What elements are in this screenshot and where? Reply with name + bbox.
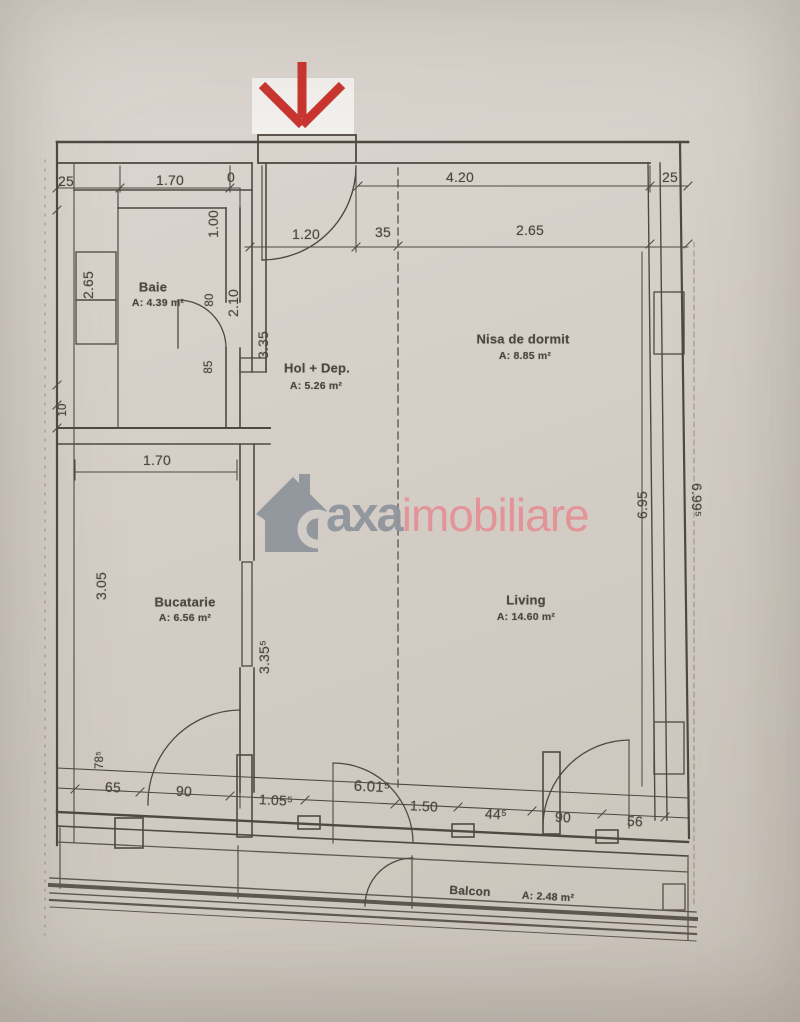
room-label-living: Living xyxy=(506,593,545,608)
dim-top-right-25: 25 xyxy=(662,169,678,185)
dim-bottom-78-5: 78⁵ xyxy=(94,751,106,769)
room-label-nisa: Nisa de dormit xyxy=(476,332,569,347)
dim-bottom-65: 65 xyxy=(105,779,122,796)
scanned-floor-plan-photo: axa imobiliare Baie A: 4.39 m² Hol + Dep… xyxy=(0,0,800,1022)
dim-right-6-99-5: 6.99⁵ xyxy=(689,483,705,517)
dim-baie-2-10: 2.10 xyxy=(225,289,241,317)
dim-row2-1-20: 1.20 xyxy=(292,226,320,242)
room-area-living: A: 14.60 m² xyxy=(497,611,555,623)
dim-top-left-25: 25 xyxy=(58,173,74,189)
dim-top-0: 0 xyxy=(227,169,235,185)
dim-row2-35: 35 xyxy=(375,224,391,240)
dim-buc-1-70: 1.70 xyxy=(143,452,171,468)
room-area-nisa: A: 8.85 m² xyxy=(499,350,551,362)
watermark-brand: axa imobiliare xyxy=(252,476,589,554)
dim-bottom-90-b: 90 xyxy=(555,809,572,826)
watermark-brand-secondary: imobiliare xyxy=(402,492,589,538)
room-label-hol: Hol + Dep. xyxy=(284,361,350,376)
dim-bottom-1-50: 1.50 xyxy=(410,797,439,814)
watermark-brand-primary: axa xyxy=(326,491,402,540)
dim-right-6-95: 6.95 xyxy=(634,491,650,519)
floor-plan-drawing: axa imobiliare Baie A: 4.39 m² Hol + Dep… xyxy=(0,0,800,1022)
dim-hol-3-35: 3.35 xyxy=(255,331,271,359)
door-posts xyxy=(115,752,618,848)
dim-bottom-6-01-5: 6.01⁵ xyxy=(353,778,390,797)
dim-buc-3-35-5: 3.35⁵ xyxy=(256,640,272,674)
dim-bottom-44-5: 44⁵ xyxy=(485,805,508,822)
room-label-baie: Baie xyxy=(139,280,167,295)
balcony-railing xyxy=(50,828,696,941)
room-label-bucatarie: Bucatarie xyxy=(154,595,215,610)
dim-baie-2-65: 2.65 xyxy=(80,271,96,299)
room-area-hol: A: 5.26 m² xyxy=(290,380,342,392)
dim-bottom-90-a: 90 xyxy=(176,783,193,800)
dim-top-4-20: 4.20 xyxy=(446,169,474,185)
dim-v-1-00: 1.00 xyxy=(205,210,221,238)
dim-top-1-70: 1.70 xyxy=(156,172,184,188)
dim-bottom-56: 56 xyxy=(627,813,644,830)
dim-bottom-1-05-5: 1.05⁵ xyxy=(259,791,294,809)
dim-baie-85: 85 xyxy=(203,360,215,373)
entrance-arrow-icon xyxy=(252,62,354,134)
room-label-balcon: Balcon xyxy=(449,883,491,899)
dim-buc-3-05: 3.05 xyxy=(93,572,109,600)
room-area-bucatarie: A: 6.56 m² xyxy=(159,612,211,624)
room-area-baie: A: 4.39 m² xyxy=(132,297,184,309)
dim-baie-80: 80 xyxy=(204,293,216,306)
dim-left-10: 10 xyxy=(57,403,69,416)
dim-row2-2-65: 2.65 xyxy=(516,222,544,238)
